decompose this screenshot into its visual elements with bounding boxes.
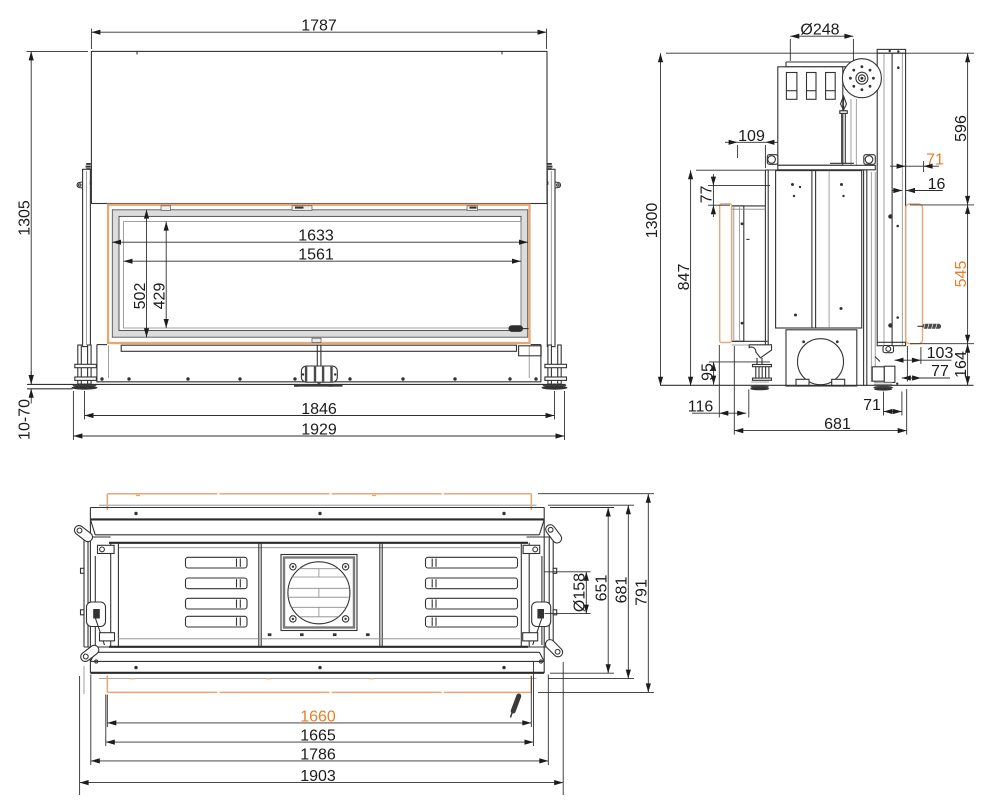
- svg-text:1665: 1665: [300, 728, 336, 745]
- svg-text:1786: 1786: [300, 746, 336, 763]
- svg-text:16: 16: [928, 176, 946, 193]
- svg-text:1300: 1300: [644, 203, 661, 239]
- svg-text:71: 71: [863, 397, 881, 414]
- svg-text:103: 103: [927, 345, 954, 362]
- svg-text:596: 596: [953, 115, 970, 142]
- svg-text:164: 164: [953, 351, 970, 378]
- svg-text:77: 77: [699, 186, 716, 204]
- svg-text:109: 109: [738, 128, 765, 145]
- svg-text:1305: 1305: [17, 200, 34, 236]
- svg-text:95: 95: [700, 363, 717, 381]
- svg-text:502: 502: [132, 283, 149, 310]
- svg-text:10-70: 10-70: [17, 399, 34, 440]
- svg-text:791: 791: [634, 579, 651, 606]
- svg-text:681: 681: [614, 577, 631, 604]
- svg-text:1846: 1846: [301, 401, 337, 418]
- svg-text:1929: 1929: [301, 421, 337, 438]
- svg-text:651: 651: [594, 575, 611, 602]
- svg-text:116: 116: [688, 399, 714, 416]
- svg-text:Ø248: Ø248: [800, 22, 839, 39]
- svg-text:1903: 1903: [300, 768, 336, 785]
- svg-text:681: 681: [824, 416, 851, 433]
- svg-text:545: 545: [953, 261, 970, 288]
- svg-text:Ø158: Ø158: [572, 573, 589, 612]
- svg-text:1561: 1561: [298, 247, 334, 264]
- svg-text:847: 847: [676, 264, 693, 291]
- svg-text:1787: 1787: [301, 18, 337, 35]
- svg-text:71: 71: [926, 152, 944, 169]
- svg-text:1633: 1633: [298, 228, 334, 245]
- svg-text:1660: 1660: [300, 708, 336, 725]
- svg-text:77: 77: [931, 363, 949, 380]
- svg-text:429: 429: [152, 283, 169, 310]
